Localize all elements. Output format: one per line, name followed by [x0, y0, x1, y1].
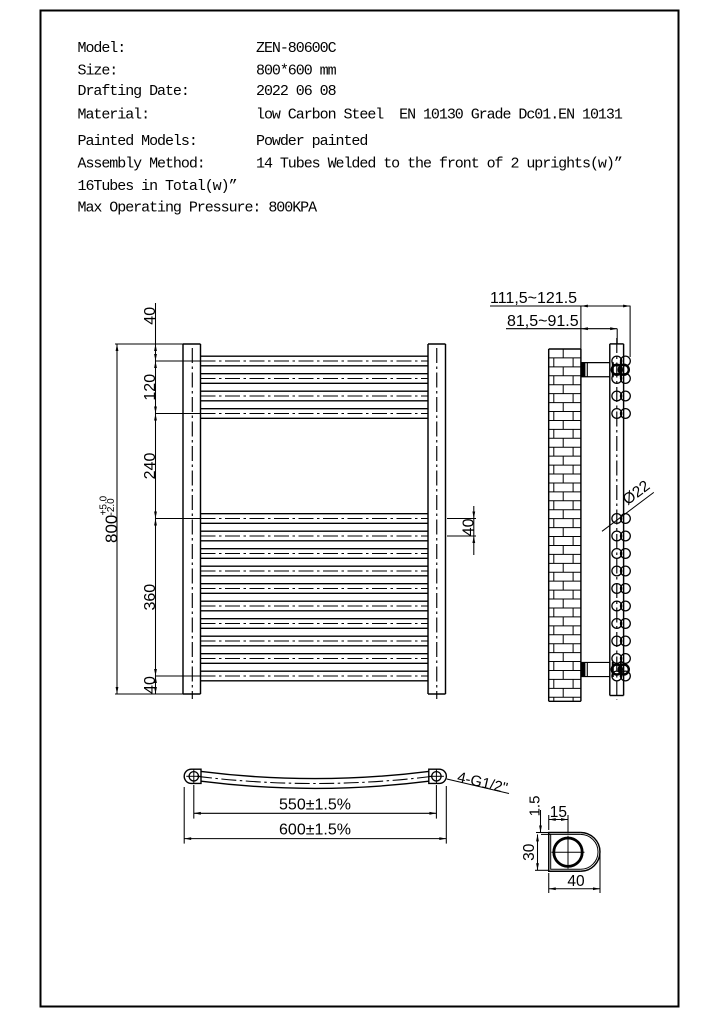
svg-text:ZEN-80600C: ZEN-80600C: [256, 40, 337, 57]
svg-text:600±1.5%: 600±1.5%: [279, 822, 351, 839]
svg-text:Max Operating Pressure: 800KPA: Max Operating Pressure: 800KPA: [78, 200, 318, 217]
svg-text:111,5~121.5: 111,5~121.5: [490, 290, 577, 307]
svg-text:Assembly Method:: Assembly Method:: [78, 156, 205, 173]
svg-text:40: 40: [460, 518, 477, 536]
svg-text:Material:: Material:: [78, 107, 150, 124]
svg-text:2022 06 08: 2022 06 08: [256, 83, 337, 100]
svg-text:240: 240: [142, 453, 159, 480]
svg-text:40: 40: [142, 676, 159, 694]
svg-text:800*600 mm: 800*600 mm: [256, 63, 337, 80]
svg-text:1.5: 1.5: [527, 796, 544, 817]
svg-text:360: 360: [142, 584, 159, 611]
svg-text:Drafting Date:: Drafting Date:: [78, 83, 189, 100]
svg-text:14 Tubes Welded to the front o: 14 Tubes Welded to the front of 2 uprigh…: [256, 156, 622, 173]
svg-text:Painted Models:: Painted Models:: [78, 133, 197, 150]
svg-text:16Tubes in Total(w)”: 16Tubes in Total(w)”: [78, 178, 237, 195]
svg-text:120: 120: [142, 374, 159, 401]
svg-text:40: 40: [567, 873, 585, 890]
svg-text:Model:: Model:: [78, 40, 126, 57]
svg-text:low Carbon Steel EN 10130 Gra: low Carbon Steel EN 10130 Grade Dc01.EN …: [256, 107, 623, 124]
svg-text:-2.0: -2.0: [106, 498, 117, 516]
svg-text:550±1.5%: 550±1.5%: [279, 797, 351, 814]
svg-text:800: 800: [102, 515, 121, 543]
svg-text:Powder painted: Powder painted: [256, 133, 367, 150]
svg-text:30: 30: [521, 843, 538, 861]
svg-text:40: 40: [142, 307, 159, 325]
svg-text:Size:: Size:: [78, 63, 118, 80]
svg-text:81,5~91.5: 81,5~91.5: [507, 313, 579, 330]
svg-text:15: 15: [550, 804, 567, 821]
